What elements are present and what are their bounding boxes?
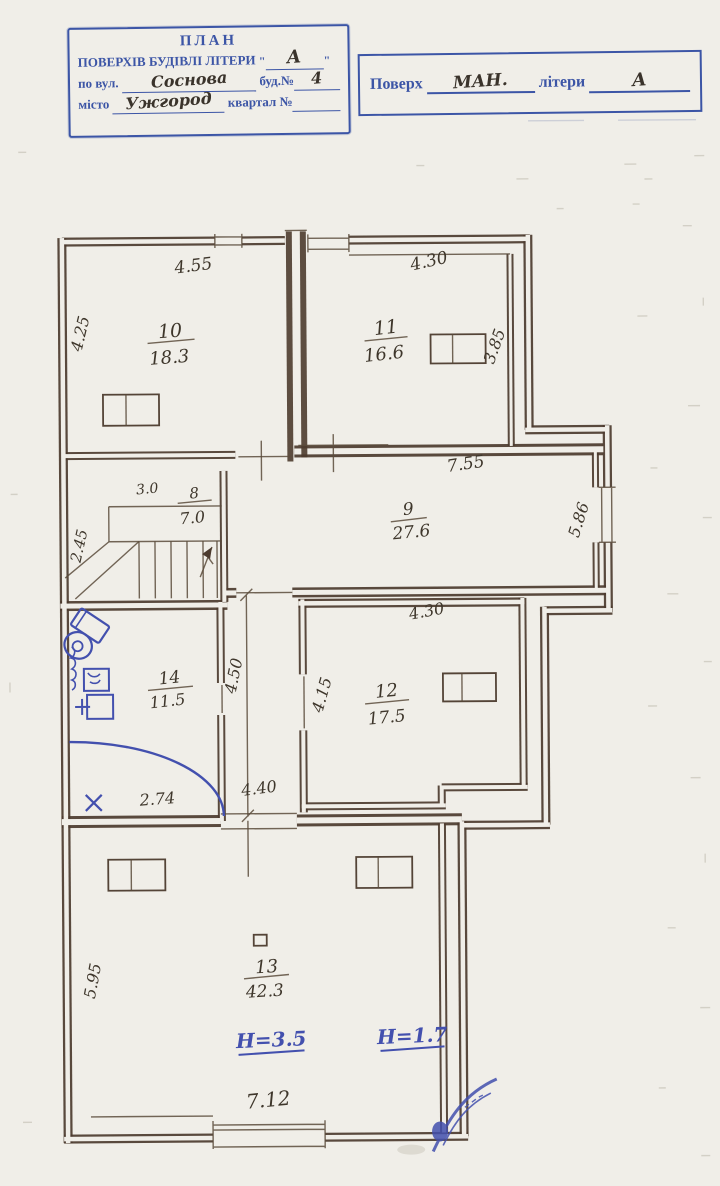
- wall-room10-bottom: [63, 455, 235, 456]
- stamp-block-label: квартал №: [228, 92, 293, 113]
- dim-room10-top: 4.55: [172, 254, 213, 279]
- wall-outer-right-lower: [544, 607, 546, 825]
- wall-room14-room13-band: [62, 819, 462, 822]
- room11-number: 11: [373, 316, 399, 341]
- stair-steps: [139, 541, 217, 599]
- dim-room13-left: 5.95: [80, 962, 105, 1001]
- stamp-house-field: 4: [294, 69, 340, 91]
- room9-area: 27.6: [391, 521, 432, 545]
- room13-number: 13: [255, 956, 279, 978]
- wall-stairs-right: [223, 471, 224, 602]
- floor-letter-box: Поверх МАН. літери А: [358, 50, 703, 116]
- dimension-lines: [239, 434, 391, 877]
- wall-room12-right: [522, 598, 523, 787]
- dim-room14-bottom: 2.74: [138, 788, 176, 810]
- window-room13-bottom: [213, 1120, 325, 1149]
- dimension-labels: 4.55 4.25 4.30 3.85 7.55 5.86 3.0 2.45 4…: [64, 247, 597, 1115]
- sink-symbol-1-marks: [88, 673, 100, 684]
- windows-and-doors: [85, 231, 620, 1150]
- stamp-block-field: [293, 111, 341, 113]
- stamp-row-city: місто Ужгород квартал №: [78, 90, 340, 115]
- stamp-street-value: Соснова: [150, 70, 227, 91]
- stamp-house-label: буд.№: [259, 71, 294, 92]
- faint-dashes: [528, 120, 696, 121]
- room10-number: 10: [157, 319, 183, 343]
- blue-annotation-squiggle: [71, 647, 76, 690]
- stamp-house-value: 4: [311, 70, 323, 87]
- stamp-street-label: по вул.: [78, 73, 119, 94]
- scanned-page: 10 18.3 11 16.6 9 27.6 8 7.0 12 17.5 13 …: [0, 0, 720, 1186]
- stamp-city-label: місто: [78, 95, 109, 116]
- room11-area: 16.6: [363, 342, 405, 367]
- sink-symbol-1: [84, 669, 109, 691]
- stamp-letters-value: А: [287, 48, 303, 67]
- height-main-label: Н=3.5: [234, 1026, 306, 1053]
- stove-room12: [443, 673, 496, 701]
- wall-room9-right-inner: [595, 450, 596, 590]
- height-low-label: Н=1.7: [375, 1022, 447, 1049]
- dim-room11-top: 4.30: [407, 248, 449, 276]
- room8-area: 7.0: [179, 507, 206, 528]
- room13-bottom-inner-line: [91, 1116, 213, 1117]
- smudge: [397, 1145, 425, 1155]
- wall-step-right: [525, 429, 609, 430]
- window-room10-top: [215, 234, 242, 248]
- sink-symbol-2: [87, 695, 113, 719]
- room14-area: 11.5: [149, 689, 187, 712]
- window-room11-top: [308, 234, 349, 252]
- floor-label: Поверх: [370, 75, 423, 94]
- stove-room11: [431, 334, 486, 363]
- room13-area: 42.3: [244, 981, 284, 1003]
- stove-room10: [103, 394, 159, 425]
- window-room9-right: [599, 487, 616, 542]
- dim-room9-right: 5.86: [564, 500, 593, 540]
- dim-room10-left: 4.25: [67, 314, 94, 354]
- wall-room11-right-inner: [510, 254, 511, 446]
- room10-area: 18.3: [149, 346, 191, 370]
- room14-number: 14: [158, 667, 182, 689]
- plan-group: 10 18.3 11 16.6 9 27.6 8 7.0 12 17.5 13 …: [6, 120, 716, 1161]
- wall-step-right3: [462, 825, 550, 826]
- room12-number: 12: [374, 680, 399, 703]
- stove-room13-left: [108, 859, 165, 890]
- wall-stairs-bottom-room14-top: [60, 605, 227, 606]
- dim-stairs-width: 3.0: [135, 480, 159, 498]
- x-mark: [86, 795, 102, 811]
- dim-corridor-horizontal: 4.40: [239, 777, 278, 801]
- plan-stamp: ПЛАН ПОВЕРХІВ БУДІВЛІ ЛІТЕРИ " А " по ву…: [67, 24, 351, 138]
- door-room13-corridor: [221, 813, 297, 829]
- dim-room12-left: 4.15: [308, 675, 336, 715]
- dim-room13-bottom: 7.12: [245, 1086, 292, 1114]
- chimney-shaft: [285, 230, 309, 461]
- floor-value: МАН.: [453, 72, 509, 92]
- wall-room11-bottom-room9-top: [294, 449, 603, 451]
- stamp-letters-label: ПОВЕРХІВ БУДІВЛІ ЛІТЕРИ: [78, 50, 256, 73]
- dim-line-corridor: [240, 589, 254, 877]
- room12-area: 17.5: [367, 706, 407, 729]
- chimney-wall-left: [289, 231, 291, 461]
- stove-room13-right: [356, 857, 412, 888]
- chimney-wall-right: [303, 231, 305, 457]
- letter-value: А: [632, 71, 648, 90]
- room8-number: 8: [189, 484, 200, 503]
- room9-number: 9: [402, 499, 415, 520]
- wall-room12-top: [298, 602, 524, 604]
- dim-room9-top: 7.55: [446, 452, 486, 477]
- stamp-city-value: Ужгород: [125, 91, 212, 113]
- stamp-city-field: Ужгород: [112, 92, 224, 115]
- floor-plan-drawing: 10 18.3 11 16.6 9 27.6 8 7.0 12 17.5 13 …: [0, 0, 720, 1186]
- column-symbol-room13: [254, 935, 267, 946]
- dim-room11-right: 3.85: [480, 326, 510, 366]
- wall-outer-right-bottom: [462, 821, 464, 1136]
- letter-label: літери: [539, 73, 586, 92]
- wall-outer-right-upper: [528, 235, 529, 430]
- scan-noise: [6, 120, 716, 1161]
- letter-field: А: [589, 71, 690, 93]
- wall-outer-right-mid: [607, 425, 608, 612]
- wall-room13-right-inner: [442, 823, 444, 1132]
- stamp-letters-field: А: [265, 48, 323, 70]
- floor-field: МАН.: [427, 73, 535, 94]
- plan-walls: [58, 234, 616, 1143]
- wall-outer-bottom: [64, 1136, 468, 1139]
- stamp-quote-close: ": [323, 51, 330, 70]
